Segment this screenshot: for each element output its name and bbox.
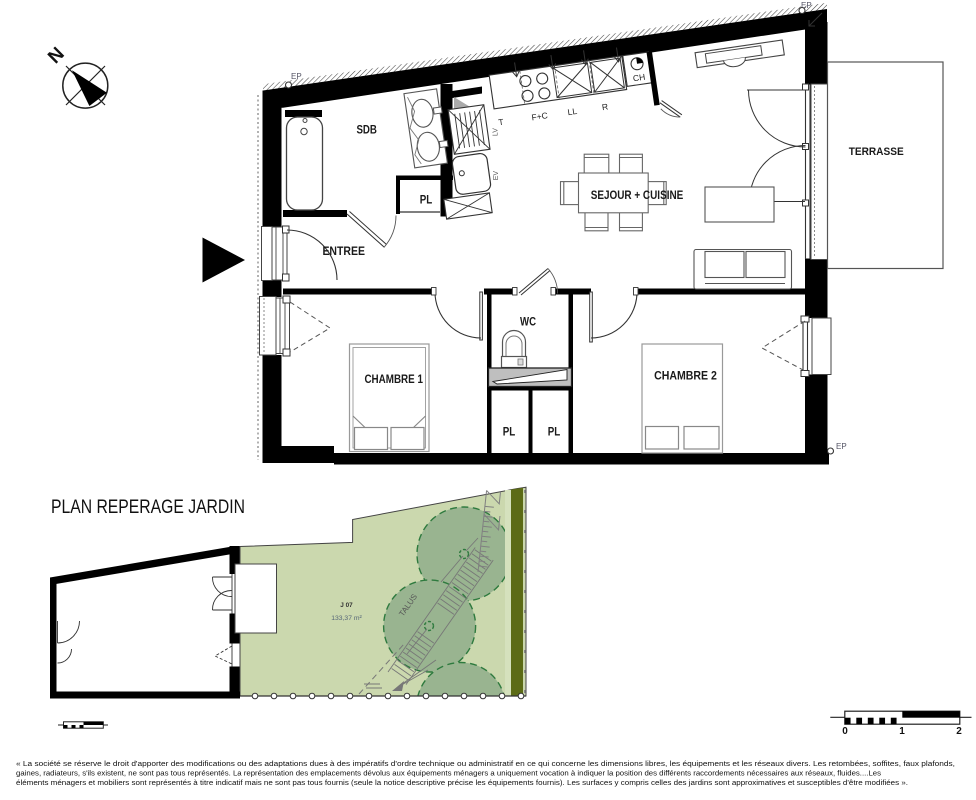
svg-text:LL: LL bbox=[567, 106, 578, 117]
svg-text:PL: PL bbox=[548, 425, 561, 439]
svg-text:SEJOUR + CUISINE: SEJOUR + CUISINE bbox=[591, 188, 684, 202]
svg-text:WC: WC bbox=[520, 315, 536, 329]
svg-text:PLAN REPERAGE JARDIN: PLAN REPERAGE JARDIN bbox=[51, 497, 245, 518]
svg-text:EV: EV bbox=[493, 171, 500, 181]
svg-text:« La société se réserve le dro: « La société se réserve le droit d'appor… bbox=[16, 759, 955, 768]
svg-text:éléments ménagers et mobiliers: éléments ménagers et mobiliers sont repr… bbox=[16, 778, 908, 787]
svg-text:CHAMBRE 2: CHAMBRE 2 bbox=[654, 369, 717, 383]
svg-text:ENTREE: ENTREE bbox=[322, 244, 365, 258]
svg-text:PL: PL bbox=[420, 193, 433, 207]
svg-text:CH: CH bbox=[632, 72, 646, 84]
svg-text:EP: EP bbox=[291, 72, 302, 81]
svg-text:gaines, radiateurs, s'ils exis: gaines, radiateurs, s'ils existent, ne s… bbox=[16, 769, 881, 778]
svg-text:EP: EP bbox=[836, 442, 847, 451]
svg-text:133,37 m²: 133,37 m² bbox=[331, 615, 362, 622]
svg-text:SDB: SDB bbox=[356, 123, 377, 137]
svg-text:1: 1 bbox=[899, 726, 905, 737]
svg-text:TERRASSE: TERRASSE bbox=[849, 146, 904, 158]
svg-text:PL: PL bbox=[503, 425, 516, 439]
svg-text:LV: LV bbox=[492, 128, 499, 136]
svg-text:J 07: J 07 bbox=[340, 602, 353, 609]
svg-text:0: 0 bbox=[842, 726, 848, 737]
svg-text:2: 2 bbox=[956, 726, 962, 737]
svg-text:CHAMBRE 1: CHAMBRE 1 bbox=[364, 372, 423, 386]
